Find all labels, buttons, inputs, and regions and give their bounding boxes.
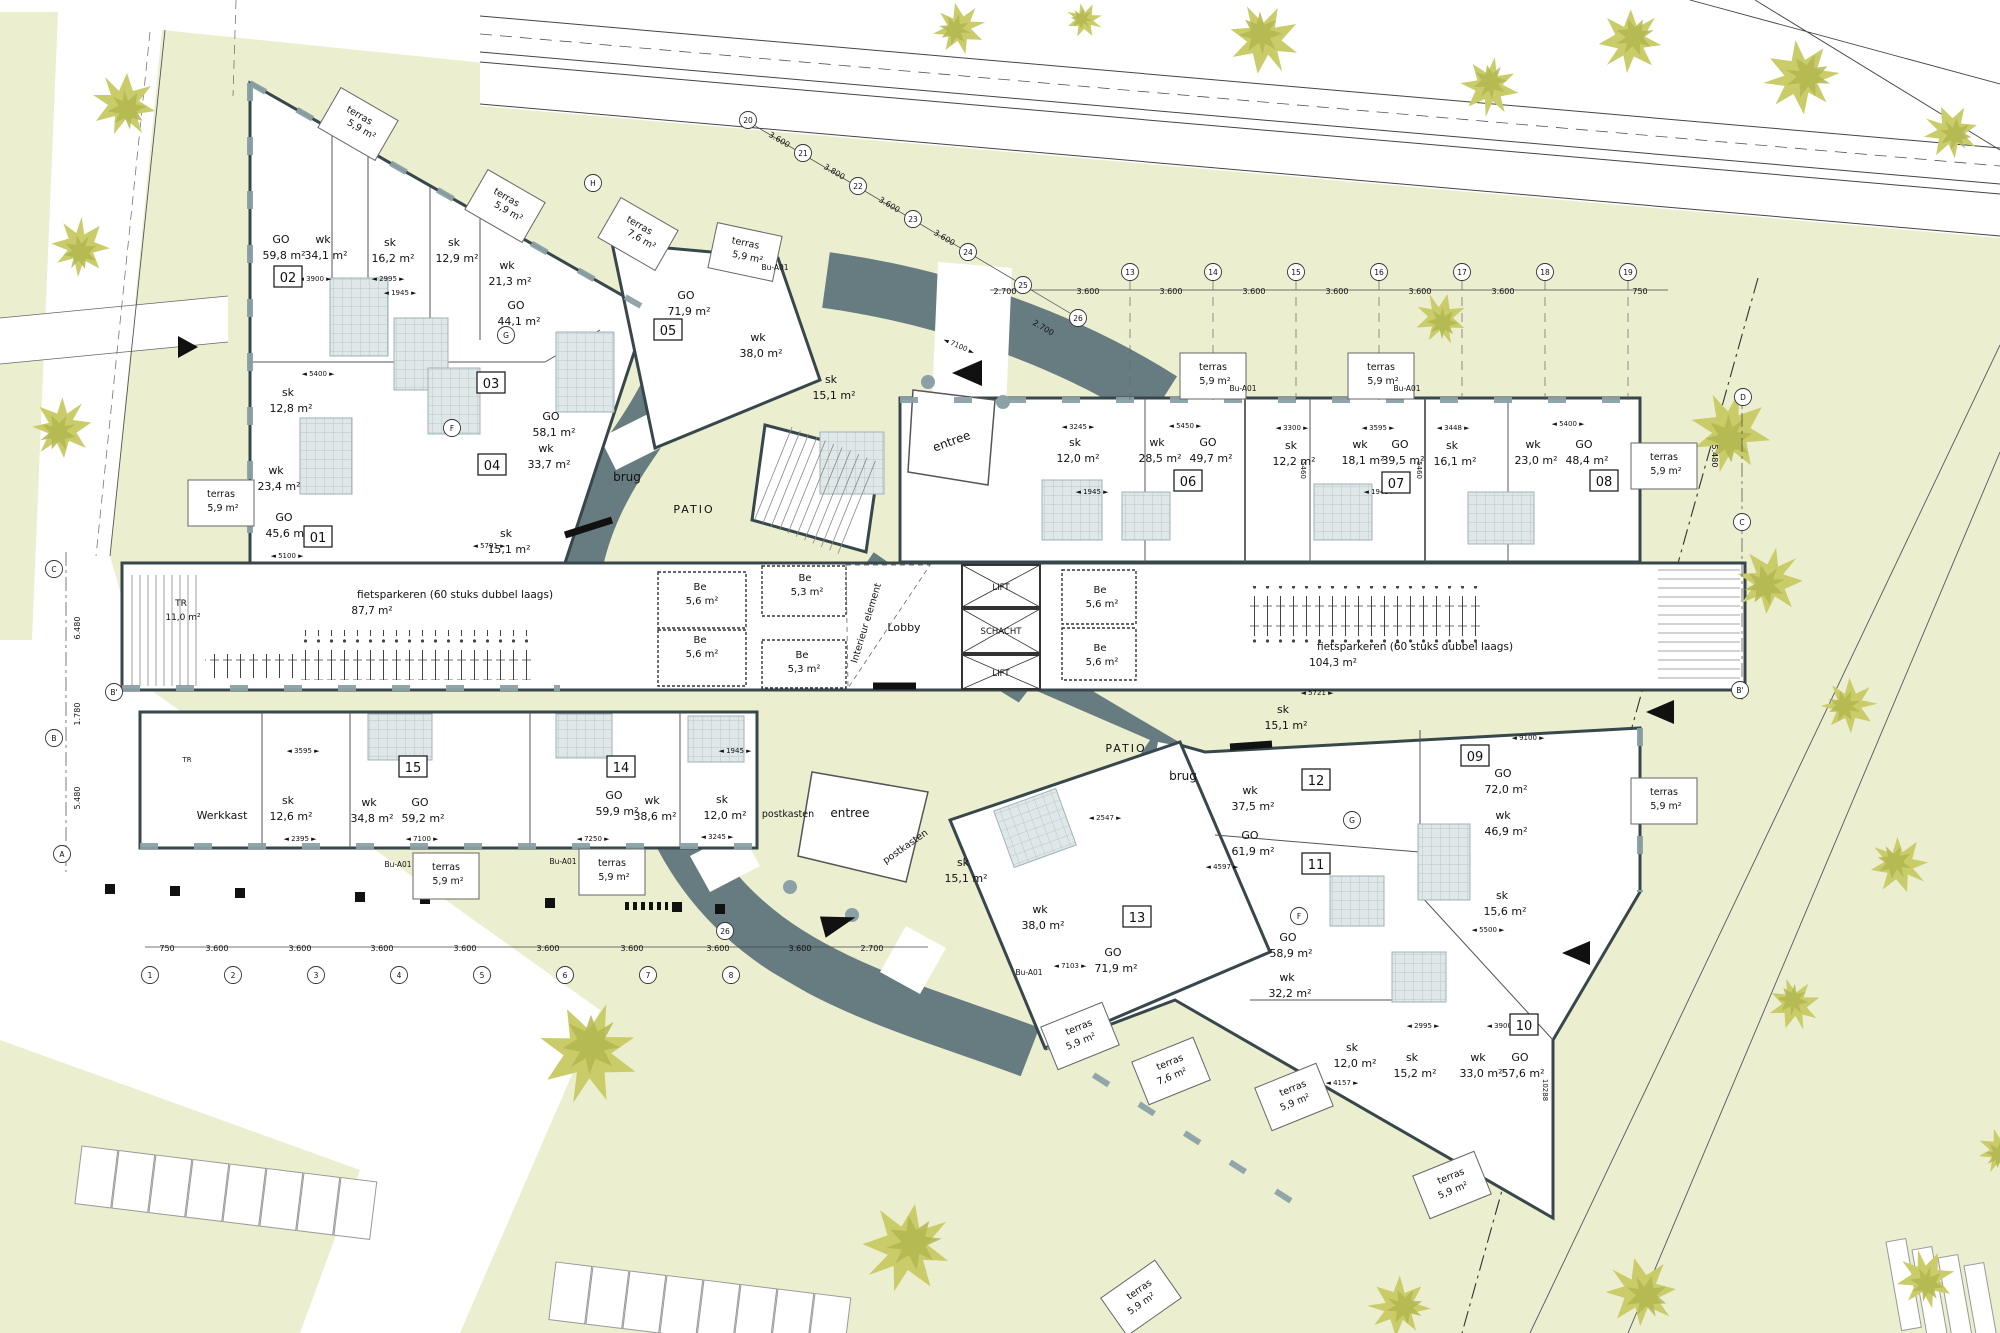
dimension-label: ◄ 1945 ► [1075,488,1109,496]
unit-number-box: 13 [1123,906,1151,927]
room-area-label: 59,8 m² [262,249,305,262]
room-area-label: 61,9 m² [1231,845,1274,858]
room-area-label: 18,1 m² [1341,454,1384,467]
room-type-label: wk [1495,809,1511,822]
unit-number-box: 11 [1302,853,1330,874]
plan-label: 5,6 m² [686,596,719,607]
grid-letter-bubble: G [498,327,515,344]
terrace: terras5,9 m²Bu-A01 [1348,353,1421,399]
grid-number-bubble: 21 [795,145,812,162]
grid-number-bubble-label: 1 [148,971,153,980]
unit-number-box: 09 [1461,745,1489,766]
grid-letter-bubble-label: H [590,179,596,188]
lift-label: LIFT [992,669,1010,679]
terrace: terras5,9 m² [1631,778,1697,824]
terrace-area-label: 5,9 m² [1650,801,1681,812]
dimension-label: 5460 [1299,461,1307,479]
plan-label: 104,3 m² [1309,657,1357,669]
room-type-label: sk [1446,439,1459,452]
unit-number-box: 05 [654,319,682,340]
werkkast-label: Werkkast [197,809,249,822]
terrace-type-label: Bu-A01 [761,263,788,272]
terrace-type-label: Bu-A01 [1229,384,1256,393]
dimension-label: ◄ 2995 ► [1406,1022,1440,1030]
brug-label: brug [613,470,641,484]
parking-stall [734,1285,777,1333]
room-type-label: GO [507,299,525,312]
terrace: terras5,9 m² [1631,443,1697,489]
room-type-label: wk [1525,438,1541,451]
plan-label: Be [693,582,706,593]
grid-number-bubble: 2 [225,967,242,984]
plan-label: 11,0 m² [165,613,201,623]
grid-letter-bubble-label: G [503,331,509,340]
parking-stall [808,1294,851,1333]
grid-number-bubble: 24 [960,244,977,261]
dimension-label: 3.600 [1409,287,1432,296]
unit-number-label: 10 [1516,1019,1533,1034]
unit-number-label: 11 [1308,858,1325,873]
grid-letter-bubble: H [585,175,602,192]
terrace-type-label: Bu-A01 [384,860,411,869]
dimension-label: ◄ 5791 ► [472,542,506,550]
dimension-label: ◄ 4157 ► [1325,1079,1359,1087]
parking-stall [186,1160,229,1222]
grid-letter-bubble-label: G [1349,816,1355,825]
room-type-label: sk [957,856,970,869]
grid-letter-bubble-label: D [1740,393,1746,402]
unit-number-label: 06 [1180,475,1197,490]
dimension-label: ◄ 2995 ► [371,275,405,283]
plan-label: 15,1 m² [1264,719,1307,732]
room-area-label: 33,0 m² [1459,1067,1502,1080]
grid-number-bubble: 15 [1288,264,1305,281]
unit-number-label: 13 [1129,911,1146,926]
unit-number-label: 05 [660,324,677,339]
grid-number-bubble: 3 [308,967,325,984]
room-area-label: 38,0 m² [1021,919,1064,932]
dimension-label: ◄ 2547 ► [1088,814,1122,822]
room-area-label: 34,8 m² [350,812,393,825]
grid-number-bubble: 4 [391,967,408,984]
room-area-label: 45,6 m² [265,527,308,540]
parking-stall [334,1178,377,1240]
grid-number-bubble: 26 [1070,310,1087,327]
dimension-label: ◄ 5721 ► [1300,689,1334,697]
room-area-label: 23,4 m² [257,480,300,493]
unit-number-label: 15 [405,761,422,776]
room-area-label: 12,0 m² [1333,1057,1376,1070]
grid-number-bubble: 26 [717,923,734,940]
grid-letter-bubble-label: A [59,850,65,859]
grid-letter-bubble-label: F [450,424,454,433]
entree-south-label: entree [830,806,869,820]
grid-letter-bubble: B' [1732,682,1749,699]
room-area-label: 37,5 m² [1231,800,1274,813]
room-type-label: sk [282,386,295,399]
plan-label: TR [181,756,191,764]
room-type-label: GO [1279,931,1297,944]
terrace-area-label: 5,9 m² [1199,376,1230,387]
room-area-label: 28,5 m² [1138,452,1181,465]
unit-number-box: 07 [1382,472,1410,493]
dimension-label: ◄ 3300 ► [1275,424,1309,432]
room-type-label: wk [1352,438,1368,451]
room-area-label: 15,2 m² [1393,1067,1436,1080]
grid-letter-bubble: C [46,561,63,578]
terrace-type-label: Bu-A01 [1015,968,1042,977]
grid-number-bubble: 1 [142,967,159,984]
grid-number-bubble: 5 [474,967,491,984]
room-area-label: 71,9 m² [1094,962,1137,975]
dimension-label: 3.600 [1160,287,1183,296]
dimension-label: ◄ 3595 ► [286,747,320,755]
room-type-label: sk [825,373,838,386]
grid-number-bubble-label: 7 [646,971,651,980]
dimension-label: 3.600 [707,944,730,953]
unit-number-box: 08 [1590,470,1618,491]
terrace-area-label: 5,9 m² [598,872,629,883]
parking-stall [297,1173,340,1235]
grid-number-bubble-label: 26 [1073,314,1083,323]
room-type-label: wk [750,331,766,344]
parking-stall [112,1151,155,1213]
dimension-label: 3.600 [206,944,229,953]
room-area-label: 32,2 m² [1268,987,1311,1000]
patio-label: PATIO [673,503,714,516]
dimension-label: ◄ 5400 ► [1551,420,1585,428]
room-area-label: 23,0 m² [1514,454,1557,467]
floorplan-canvas: terras5,9 m²terras5,9 m²terras7,6 m²terr… [0,0,2000,1333]
plan-label: 5,3 m² [788,664,821,675]
terrace: terras5,9 m²Bu-A01 [1180,353,1257,399]
grid-letter-bubble-label: F [1297,912,1301,921]
room-area-label: 58,9 m² [1269,947,1312,960]
room-area-label: 38,6 m² [633,810,676,823]
room-type-label: GO [272,233,290,246]
dimension-label: ◄ 7103 ► [1053,962,1087,970]
unit-number-label: 01 [310,531,327,546]
dimension-label: 3.600 [1243,287,1266,296]
room-type-label: GO [677,289,695,302]
dimension-label: ◄ 5400 ► [301,370,335,378]
room-type-label: sk [282,794,295,807]
grid-letter-bubble: B [46,730,63,747]
unit-number-label: 09 [1467,750,1484,765]
plan-label: Be [798,573,811,584]
grid-number-bubble: 16 [1371,264,1388,281]
grid-letter-bubble-label: C [1739,518,1744,527]
dimension-label: ◄ 5100 ► [270,552,304,560]
room-area-label: 15,1 m² [944,872,987,885]
room-area-label: 12,0 m² [703,809,746,822]
terrace-label: terras [1367,362,1395,373]
parking-stall [586,1267,629,1329]
room-area-label: 12,2 m² [1272,455,1315,468]
parking-stall [223,1164,266,1226]
dimension-label: 3.600 [1077,287,1100,296]
room-type-label: wk [268,464,284,477]
plan-label: 5,6 m² [686,649,719,660]
unit-number-box: 12 [1302,769,1330,790]
room-area-label: 12,9 m² [435,252,478,265]
grid-number-bubble: 18 [1537,264,1554,281]
unit-number-box: 03 [477,372,505,393]
terrace-type-label: Bu-A01 [1393,384,1420,393]
grid-letter-bubble: F [1291,908,1308,925]
grid-number-bubble: 23 [905,211,922,228]
dimension-label: ◄ 4597 ► [1205,863,1239,871]
unit-number-box: 02 [274,266,302,287]
grid-number-bubble-label: 5 [480,971,485,980]
room-type-label: GO [1241,829,1259,842]
dimension-label: ◄ 3900 ► [298,275,332,283]
room-area-label: 34,1 m² [304,249,347,262]
room-type-label: sk [384,236,397,249]
dimension-label: ◄ 2395 ► [283,835,317,843]
unit-number-label: 14 [613,761,630,776]
grid-number-bubble-label: 19 [1623,268,1633,277]
room-type-label: wk [1470,1051,1486,1064]
brug-label: brug [1169,769,1197,783]
fietsparkeren-label: fietsparkeren (60 stuks dubbel laags) [357,589,553,601]
dimension-label: 2.700 [861,944,884,953]
room-type-label: GO [411,796,429,809]
room-type-label: GO [1391,438,1409,451]
unit-number-box: 06 [1174,470,1202,491]
room-area-label: 33,7 m² [527,458,570,471]
plan-label: Be [795,650,808,661]
room-type-label: GO [542,410,560,423]
grid-number-bubble-label: 22 [853,182,863,191]
terrace-label: terras [1650,452,1678,463]
grid-number-bubble: 14 [1205,264,1222,281]
grid-number-bubble-label: 16 [1374,268,1384,277]
dimension-label: ◄ 5500 ► [1471,926,1505,934]
dimension-label: 2.700 [994,287,1017,296]
dimension-label: 3.600 [371,944,394,953]
dimension-label: 3.600 [1492,287,1515,296]
grid-number-bubble-label: 14 [1208,268,1218,277]
dimension-label: 3.600 [789,944,812,953]
dimension-label: ◄ 1945 ► [383,289,417,297]
terrace-label: terras [1199,362,1227,373]
parking-stall [660,1276,703,1333]
unit-number-label: 04 [484,459,501,474]
dimension-label: 3.600 [537,944,560,953]
plan-label: 5,6 m² [1086,599,1119,610]
parking-stall [697,1280,740,1333]
room-area-label: 21,3 m² [488,275,531,288]
room-area-label: 16,2 m² [371,252,414,265]
room-type-label: sk [716,793,729,806]
grid-number-bubble: 7 [640,967,657,984]
plan-label: Be [1093,585,1106,596]
dimension-label: 3.600 [454,944,477,953]
plan-label: 5,3 m² [791,587,824,598]
room-type-label: sk [448,236,461,249]
grid-letter-bubble-label: B' [110,688,117,697]
room-area-label: 38,0 m² [739,347,782,360]
unit-number-box: 01 [304,526,332,547]
grid-number-bubble-label: 20 [743,116,753,125]
room-area-label: 12,0 m² [1056,452,1099,465]
dimension-label: 3.600 [1326,287,1349,296]
unit-number-box: 04 [478,454,506,475]
room-area-label: 12,8 m² [269,402,312,415]
dimension-label: 5.480 [73,787,82,810]
grid-letter-bubble: A [54,846,71,863]
room-type-label: sk [1406,1051,1419,1064]
terrace-label: terras [598,858,626,869]
lift-label: LIFT [992,583,1010,593]
grid-number-bubble-label: 17 [1457,268,1467,277]
parking-stall [771,1289,814,1333]
grid-letter-bubble-label: B' [1736,686,1743,695]
room-area-label: 57,6 m² [1501,1067,1544,1080]
grid-number-bubble: 25 [1015,277,1032,294]
dimension-label: 750 [1632,287,1647,296]
terrace-area-label: 5,9 m² [207,503,238,514]
terrace-label: terras [432,862,460,873]
terrace-area-label: 5,9 m² [1650,466,1681,477]
dimension-label: ◄ 3448 ► [1436,424,1470,432]
grid-letter-bubble: G [1344,812,1361,829]
grid-letter-bubble: F [444,420,461,437]
grid-number-bubble-label: 24 [963,248,973,257]
plan-label: sk [1277,703,1290,716]
terrace: terras5,9 m² [188,480,254,526]
room-area-label: 12,6 m² [269,810,312,823]
dimension-label: ◄ 3595 ► [1361,424,1395,432]
room-type-label: GO [605,789,623,802]
dimension-label: 3.600 [621,944,644,953]
room-area-label: 59,2 m² [401,812,444,825]
terrace-type-label: Bu-A01 [549,857,576,866]
unit-number-box: 10 [1510,1014,1538,1035]
plan-label: Be [1093,643,1106,654]
unit-number-label: 08 [1596,475,1613,490]
room-type-label: wk [361,796,377,809]
unit-number-label: 02 [280,271,297,286]
floorplan-drawing: terras5,9 m²terras5,9 m²terras7,6 m²terr… [0,0,2000,1333]
unit-number-box: 14 [607,756,635,777]
room-type-label: wk [538,442,554,455]
grid-number-bubble: 6 [557,967,574,984]
dimension-label: ◄ 7100 ► [405,835,439,843]
room-area-label: 71,9 m² [667,305,710,318]
fietsparkeren-label: fietsparkeren (60 stuks dubbel laags) [1317,641,1513,653]
room-type-label: wk [499,259,515,272]
schacht-label: SCHACHT [981,627,1023,637]
patio-label: PATIO [1105,742,1146,755]
dimension-label: 5460 [1415,461,1423,479]
grid-number-bubble-label: 8 [729,971,734,980]
terrace-area-label: 5,9 m² [432,876,463,887]
unit-number-box: 15 [399,756,427,777]
grid-number-bubble: 19 [1620,264,1637,281]
grid-letter-bubble-label: C [51,565,56,574]
grid-letter-bubble: C [1734,514,1751,531]
grid-number-bubble: 20 [740,112,757,129]
room-area-label: 48,4 m² [1565,454,1608,467]
grid-number-bubble: 17 [1454,264,1471,281]
terrace-label: terras [1650,787,1678,798]
room-type-label: sk [500,527,513,540]
room-type-label: wk [1242,784,1258,797]
grid-letter-bubble-label: B [51,734,56,743]
dimension-label: 10288 [1541,1079,1549,1101]
room-type-label: wk [315,233,331,246]
grid-number-bubble-label: 3 [314,971,319,980]
grid-number-bubble-label: 23 [908,215,918,224]
dimension-label: ◄ 3245 ► [1061,423,1095,431]
wing-southwest [140,712,757,848]
plan-label: Be [693,635,706,646]
unit-number-label: 03 [483,377,500,392]
plan-label: TR [174,599,187,609]
unit-number-label: 12 [1308,774,1325,789]
dimension-label: 1.780 [73,703,82,726]
room-type-label: GO [1199,436,1217,449]
grid-number-bubble-label: 6 [563,971,568,980]
dimension-label: ◄ 5450 ► [1168,422,1202,430]
parking-stall [623,1271,666,1333]
grid-number-bubble-label: 21 [798,149,808,158]
room-area-label: 44,1 m² [497,315,540,328]
room-area-label: 15,6 m² [1483,905,1526,918]
grid-number-bubble-label: 18 [1540,268,1550,277]
room-area-label: 46,9 m² [1484,825,1527,838]
plan-label: 87,7 m² [351,605,392,617]
room-type-label: sk [1285,439,1298,452]
room-type-label: sk [1496,889,1509,902]
parking-stall [260,1169,303,1231]
dimension-label: 3.600 [289,944,312,953]
grid-number-bubble: 13 [1122,264,1139,281]
lobby-label: Lobby [887,621,921,634]
grid-letter-bubble: B' [106,684,123,701]
unit-number-label: 07 [1388,477,1405,492]
grid-number-bubble-label: 26 [720,927,730,936]
grid-number-bubble-label: 13 [1125,268,1135,277]
room-type-label: GO [1575,438,1593,451]
dimension-label: 750 [159,944,174,953]
dimension-label: ◄ 3245 ► [700,833,734,841]
room-type-label: GO [275,511,293,524]
parking-stall [549,1262,592,1324]
room-type-label: sk [1346,1041,1359,1054]
grid-number-bubble-label: 4 [397,971,402,980]
dimension-label: ◄ 9100 ► [1511,734,1545,742]
room-area-label: 16,1 m² [1433,455,1476,468]
room-type-label: GO [1494,767,1512,780]
parking-stall [75,1146,118,1208]
postkasten-label: postkasten [762,809,814,820]
room-type-label: wk [1149,436,1165,449]
parking-stall [149,1155,192,1217]
grid-number-bubble-label: 15 [1291,268,1301,277]
dimension-label: ◄ 7250 ► [576,835,610,843]
dimension-label: 6.480 [73,617,82,640]
room-type-label: wk [1279,971,1295,984]
room-type-label: GO [1104,946,1122,959]
room-type-label: wk [1032,903,1048,916]
grid-letter-bubble: D [1735,389,1752,406]
grid-number-bubble-label: 25 [1018,281,1028,290]
room-area-label: 59,9 m² [595,805,638,818]
room-area-label: 15,1 m² [812,389,855,402]
